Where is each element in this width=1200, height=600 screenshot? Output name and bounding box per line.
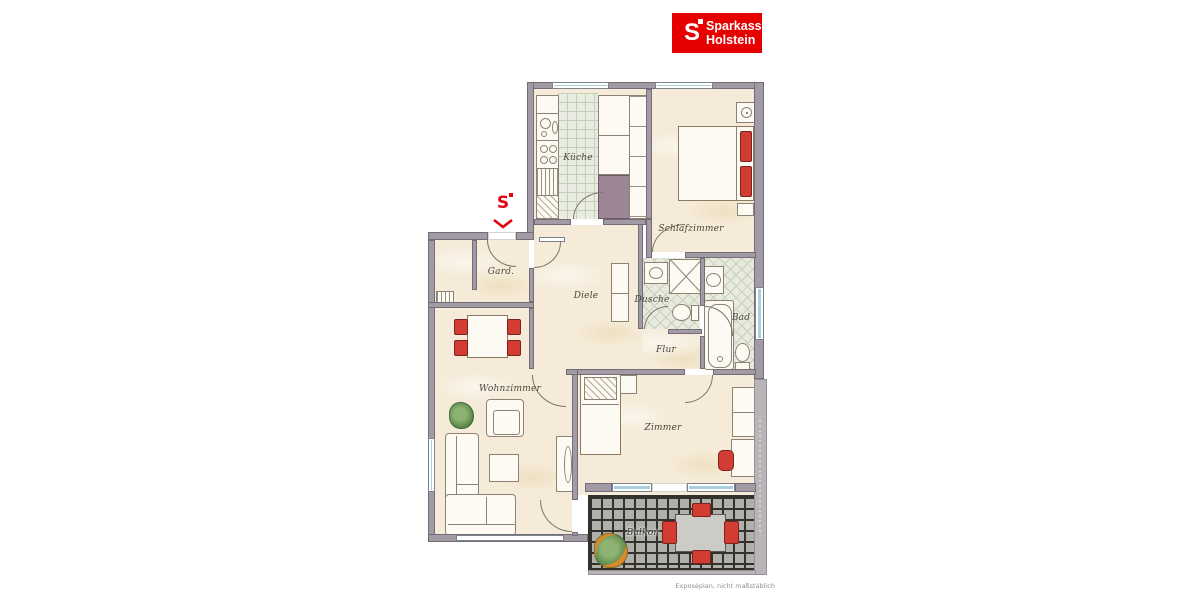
logo-text: Sparkasse Holstein (706, 19, 769, 47)
schlafzimmer-window (655, 82, 713, 89)
hall-wardrobe (611, 263, 629, 322)
kitchen-stove (536, 140, 559, 169)
wall-kueche-schlafzimmer-lower (646, 219, 652, 258)
window-pane (554, 85, 607, 86)
balkon-door-gap (652, 483, 687, 492)
wall-wing-top-right (516, 232, 534, 240)
wall-diele-wohnzimmer (529, 308, 534, 369)
sink-basin (540, 118, 551, 129)
balcony-chair (724, 521, 739, 544)
dining-chair (507, 319, 521, 335)
sofa-section-horizontal (445, 494, 516, 536)
houseplant (449, 402, 474, 429)
wall-dusche-bad-upper (700, 258, 705, 306)
dining-table (467, 315, 508, 358)
balcony-chair (662, 521, 677, 544)
footer-note: Exposéplan, nicht maßstäblich (675, 582, 775, 590)
kitchen-counter (536, 95, 559, 114)
entrance-marker: S (490, 195, 516, 237)
room-label-flur: Flur (656, 345, 676, 355)
armchair (486, 399, 524, 437)
room-label-diele: Diele (574, 291, 599, 301)
window-pane (758, 289, 761, 338)
wall-zimmer-top-right (713, 369, 756, 375)
wall-gard-left (472, 240, 477, 290)
toilet-bowl (735, 343, 750, 362)
bath-toilet (734, 342, 752, 371)
wall-dusche-bottom (668, 329, 702, 334)
wall-wing-top-left (428, 232, 488, 240)
balkon-window-left (612, 483, 652, 492)
logo-region: Holstein (706, 33, 769, 47)
kitchen-tall-cabinets (629, 95, 647, 219)
room-label-zimmer: Zimmer (644, 423, 681, 433)
sparkasse-s-icon: S (497, 195, 509, 213)
burner (549, 156, 557, 164)
watermark (759, 420, 761, 535)
kitchen-cabinet (598, 95, 630, 175)
kitchen-sink (536, 113, 559, 141)
burner (540, 156, 548, 164)
burner (540, 145, 548, 153)
wall-balkon-1 (585, 483, 612, 492)
wohnzimmer-window-left (428, 438, 435, 492)
sparkasse-s-icon: S (684, 21, 700, 45)
wall-wohnzimmer-zimmer-stub (572, 532, 578, 536)
logo-brand: Sparkasse (706, 19, 769, 33)
bed-pillow (584, 377, 617, 400)
shelf-line (612, 293, 629, 294)
cushion-line (457, 484, 478, 485)
kitchen-dishwasher (536, 168, 559, 196)
toilet-bowl (672, 304, 691, 321)
balkon-window-right (687, 483, 735, 492)
window-pane (657, 85, 711, 86)
floor-plan-page: Küche Schlafzimmer Gard. Diele Dusche Ba… (0, 0, 1200, 600)
wall-kueche-bottom-left (534, 219, 571, 225)
wall-flur-bad (700, 336, 705, 369)
wall-zimmer-top-left (577, 369, 685, 375)
window-pane (614, 486, 650, 489)
logo-s-dot (698, 19, 703, 24)
single-bed (580, 373, 621, 455)
sink-drainer (552, 121, 558, 134)
wall-kitchen-left (527, 82, 534, 236)
speaker-dot (746, 112, 748, 114)
balcony-table (675, 514, 726, 552)
shower (669, 259, 701, 294)
cushion-line (448, 524, 515, 525)
basin-bowl (649, 267, 663, 279)
nightstand (737, 203, 754, 216)
window-pane (431, 440, 432, 490)
bath-washbasin (702, 266, 724, 294)
armchair-seat (493, 410, 520, 435)
cushion-line (486, 497, 487, 524)
balcony-plant (594, 533, 628, 568)
burner (549, 145, 557, 153)
wall-wohnzimmer-zimmer (572, 374, 578, 500)
desk-chair (718, 450, 734, 471)
wall-balkon-2 (735, 483, 756, 492)
room-label-bad: Bad (732, 313, 750, 323)
desk (731, 439, 755, 477)
dining-chair (454, 319, 468, 335)
marker-s: S (497, 193, 509, 213)
room-label-schlafzimmer: Schlafzimmer (658, 224, 723, 234)
wardrobe-line (733, 412, 756, 413)
wall-left (428, 240, 435, 542)
room-label-balkon: Balkon (627, 528, 660, 538)
balkon-parapet-bottom (588, 570, 756, 575)
nightstand (620, 375, 637, 394)
wall-schlafzimmer-bottom (685, 252, 756, 258)
shower-toilet (671, 303, 700, 323)
wall-diele-dusche (638, 224, 643, 329)
coffee-table (489, 454, 519, 482)
duvet-line (736, 127, 737, 200)
wall-gard-diele (529, 268, 534, 302)
toilet-tank (691, 305, 699, 321)
window-pane (689, 486, 733, 489)
entrance-arrow-icon (491, 218, 515, 230)
double-bed (678, 126, 754, 201)
balcony-chair (692, 550, 711, 564)
pillow (740, 131, 752, 162)
shelf-line (599, 135, 631, 136)
room-label-wohnzimmer: Wohnzimmer (479, 384, 541, 394)
dining-chair (507, 340, 521, 356)
balcony-chair (692, 503, 711, 517)
sparkasse-logo: S Sparkasse Holstein (672, 13, 762, 53)
pillow (740, 166, 752, 197)
room-label-dusche: Dusche (635, 295, 670, 305)
wall-kueche-schlafzimmer (646, 89, 652, 219)
kitchen-base-unit (536, 195, 559, 219)
wohnzimmer-window-bottom (456, 535, 564, 541)
kueche-window (552, 82, 609, 89)
room-label-kueche: Küche (563, 153, 593, 163)
basin-bowl (706, 273, 721, 287)
wall-gard-bottom (428, 302, 534, 308)
sink-basin-small (541, 131, 547, 137)
tub-drain (717, 356, 723, 362)
tv-screen (564, 446, 572, 483)
blanket-line (582, 404, 619, 405)
bad-window (755, 287, 764, 340)
dining-chair (454, 340, 468, 356)
shower-washbasin (644, 262, 668, 284)
marker-s-dot (509, 193, 513, 197)
room-label-gard: Gard. (488, 267, 514, 277)
